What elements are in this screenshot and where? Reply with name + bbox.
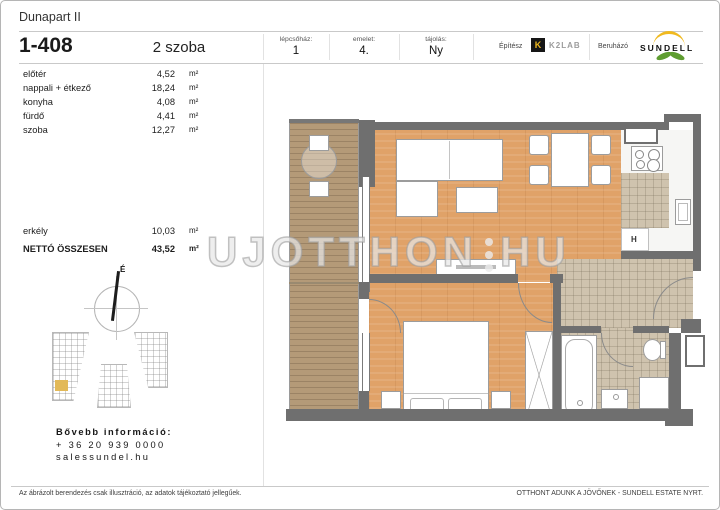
wall-segment	[681, 319, 701, 333]
exterior-wall-right	[693, 122, 701, 268]
developer-label: Beruházó	[598, 43, 628, 50]
coffee-table	[456, 187, 498, 213]
kitchen-sink	[675, 199, 691, 225]
room-name: erkély	[23, 226, 48, 236]
interior-wall	[553, 283, 561, 411]
balcony-divider	[289, 282, 359, 284]
balcony-chair	[309, 181, 329, 197]
wall-segment	[693, 259, 701, 271]
kitchen-window	[624, 127, 658, 144]
balcony-chair	[309, 135, 329, 151]
bathroom-sink	[601, 389, 628, 409]
room-row: konyha 4,08 m²	[23, 97, 205, 110]
watermark: UJOTTHONHU	[207, 228, 571, 276]
header-cell-divider	[263, 34, 264, 60]
bedroom-window	[362, 333, 370, 391]
room-row: fürdő 4,41 m²	[23, 111, 205, 124]
compass-north-label: É	[120, 265, 125, 274]
floor-label: emelet:	[333, 36, 395, 43]
total-area: 43,52	[123, 244, 175, 254]
header-divider-top	[19, 31, 703, 32]
header-divider-bottom	[19, 63, 703, 64]
room-unit: m²	[189, 125, 198, 134]
floor-value: 4.	[333, 45, 395, 57]
highlighted-unit	[55, 380, 68, 391]
room-name: előtér	[23, 69, 46, 79]
sink-basin	[678, 203, 688, 221]
stove-burner	[635, 150, 644, 159]
stove	[631, 146, 663, 171]
site-building-left	[52, 332, 89, 401]
dining-table	[551, 133, 589, 187]
nightstand	[381, 391, 401, 409]
interior-wall	[633, 326, 669, 333]
site-plan: É	[31, 263, 181, 413]
room-area: 12,27	[123, 125, 175, 135]
room-row: szoba 12,27 m²	[23, 125, 205, 138]
orientation-value: Ny	[403, 45, 469, 57]
header-cell-divider	[589, 34, 590, 60]
wall-segment	[621, 251, 693, 259]
room-row: előtér 4,52 m²	[23, 69, 205, 82]
footer-divider	[11, 486, 709, 487]
wall-segment	[289, 119, 359, 123]
room-name: szoba	[23, 125, 48, 135]
watermark-left: UJOTTHON	[207, 228, 478, 275]
interior-wall	[561, 326, 601, 333]
bed	[403, 321, 489, 419]
room-area: 4,41	[123, 111, 175, 121]
footer-disclaimer: Az ábrázolt berendezés csak illusztráció…	[19, 490, 242, 497]
sink-drain	[613, 394, 619, 400]
sundell-logo: SUNDELL	[638, 30, 704, 64]
sofa-seam	[449, 141, 450, 179]
exterior-wall-bottom	[665, 409, 693, 426]
brochure-page: Dunapart II 1-408 2 szoba lépcsőház: 1 e…	[0, 0, 720, 510]
sofa-chaise	[396, 181, 438, 217]
watermark-dots-icon	[485, 251, 493, 259]
total-row: NETTÓ ÖSSZESEN 43,52 m²	[23, 244, 205, 257]
dining-chair	[529, 165, 549, 185]
room-name: nappali + étkező	[23, 83, 91, 93]
contact-title: Bővebb információ:	[56, 427, 172, 437]
room-count: 2 szoba	[139, 39, 219, 56]
stove-burner	[636, 160, 645, 169]
bed-blanket-line	[404, 393, 488, 394]
k2lab-logo-icon: K	[531, 38, 545, 52]
room-unit: m²	[189, 97, 198, 106]
bathtub	[561, 335, 597, 419]
room-unit: m²	[189, 69, 198, 78]
orientation-label: tájolás:	[403, 36, 469, 43]
washing-machine	[639, 377, 669, 409]
header-cell-divider	[399, 34, 400, 60]
dining-chair	[591, 165, 611, 185]
unit-id: 1-408	[19, 34, 73, 58]
exterior-wall-top	[664, 114, 701, 122]
header-cell-divider	[473, 34, 474, 60]
staircase-value: 1	[267, 45, 325, 57]
wall-segment	[359, 282, 369, 299]
room-area: 18,24	[123, 83, 175, 93]
bathtub-drain	[577, 400, 583, 406]
site-building-middle	[97, 364, 131, 408]
dining-chair	[591, 135, 611, 155]
room-area: 10,03	[123, 226, 175, 236]
toilet-tank	[660, 341, 666, 359]
architect-label: Építész	[499, 43, 522, 50]
kitchen-tile-floor	[621, 173, 669, 228]
project-title: Dunapart II	[19, 10, 81, 24]
contact-phone: + 36 20 939 0000	[56, 440, 165, 450]
header-cell-divider	[329, 34, 330, 60]
watermark-right: HU	[500, 228, 571, 275]
room-name: fürdő	[23, 111, 44, 121]
staircase-label: lépcsőház:	[267, 36, 325, 43]
room-unit: m²	[189, 111, 198, 120]
k2lab-logo-letter: K	[535, 41, 542, 50]
room-unit: m²	[189, 226, 198, 235]
room-unit: m²	[189, 244, 199, 253]
architect-name: K2LAB	[549, 41, 581, 50]
room-row: nappali + étkező 18,24 m²	[23, 83, 205, 96]
exterior-wall-right	[669, 333, 681, 419]
site-building-right	[134, 332, 168, 388]
nightstand	[491, 391, 511, 409]
room-unit: m²	[189, 83, 198, 92]
total-label: NETTÓ ÖSSZESEN	[23, 244, 108, 254]
refrigerator-label: H	[631, 235, 637, 244]
shaft-niche	[685, 335, 705, 367]
balcony-row: erkély 10,03 m²	[23, 226, 205, 239]
room-area: 4,52	[123, 69, 175, 79]
exterior-wall-bottom	[286, 409, 669, 421]
dining-chair	[529, 135, 549, 155]
contact-website: salessundel.hu	[56, 452, 150, 462]
wardrobe	[525, 331, 553, 419]
room-area: 4,08	[123, 97, 175, 107]
stove-burner	[647, 159, 660, 172]
room-name: konyha	[23, 97, 53, 107]
footer-slogan: OTTHONT ADUNK A JÖVŐNEK - SUNDELL ESTATE…	[517, 490, 703, 497]
